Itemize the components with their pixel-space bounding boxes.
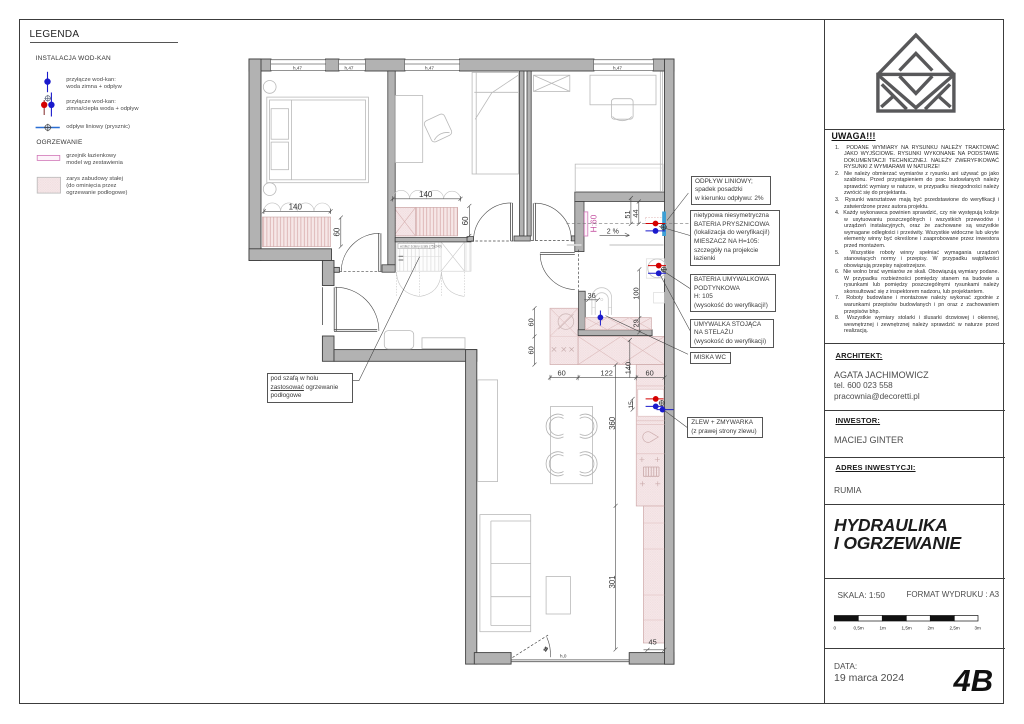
svg-text:360: 360	[608, 416, 617, 430]
svg-text:60: 60	[558, 369, 566, 378]
svg-text:29: 29	[631, 319, 640, 327]
svg-text:45: 45	[649, 638, 657, 647]
svg-text:60: 60	[646, 369, 654, 378]
svg-text:60: 60	[527, 346, 536, 354]
svg-text:100: 100	[631, 287, 640, 299]
svg-text:2 %: 2 %	[607, 229, 619, 236]
svg-text:1m: 1m	[880, 626, 887, 631]
svg-text:122: 122	[601, 369, 613, 378]
svg-text:301: 301	[608, 575, 617, 588]
svg-text:0: 0	[834, 626, 837, 631]
svg-text:15: 15	[542, 645, 549, 652]
svg-text:h,47: h,47	[293, 65, 302, 70]
svg-text:H:60: H:60	[589, 214, 599, 232]
svg-text:3m: 3m	[975, 626, 982, 631]
svg-text:h,0: h,0	[560, 654, 567, 659]
svg-text:2,5m: 2,5m	[950, 626, 960, 631]
svg-text:140: 140	[289, 203, 303, 212]
svg-text:wzdłuż ściany szafa (75x240): wzdłuż ściany szafa (75x240)	[400, 244, 442, 248]
svg-text:140: 140	[624, 362, 633, 374]
svg-text:60: 60	[527, 318, 536, 326]
svg-text:15: 15	[628, 401, 635, 409]
svg-text:60: 60	[461, 216, 470, 225]
svg-text:60: 60	[333, 227, 342, 236]
svg-text:44: 44	[631, 209, 640, 217]
svg-text:36: 36	[588, 291, 596, 300]
svg-text:0,5m: 0,5m	[854, 626, 864, 631]
svg-text:h,47: h,47	[345, 65, 354, 70]
svg-text:1,5m: 1,5m	[902, 626, 912, 631]
svg-text:140: 140	[419, 190, 433, 199]
svg-text:2m: 2m	[928, 626, 935, 631]
svg-text:h,47: h,47	[425, 65, 434, 70]
svg-text:h,47: h,47	[613, 65, 622, 70]
